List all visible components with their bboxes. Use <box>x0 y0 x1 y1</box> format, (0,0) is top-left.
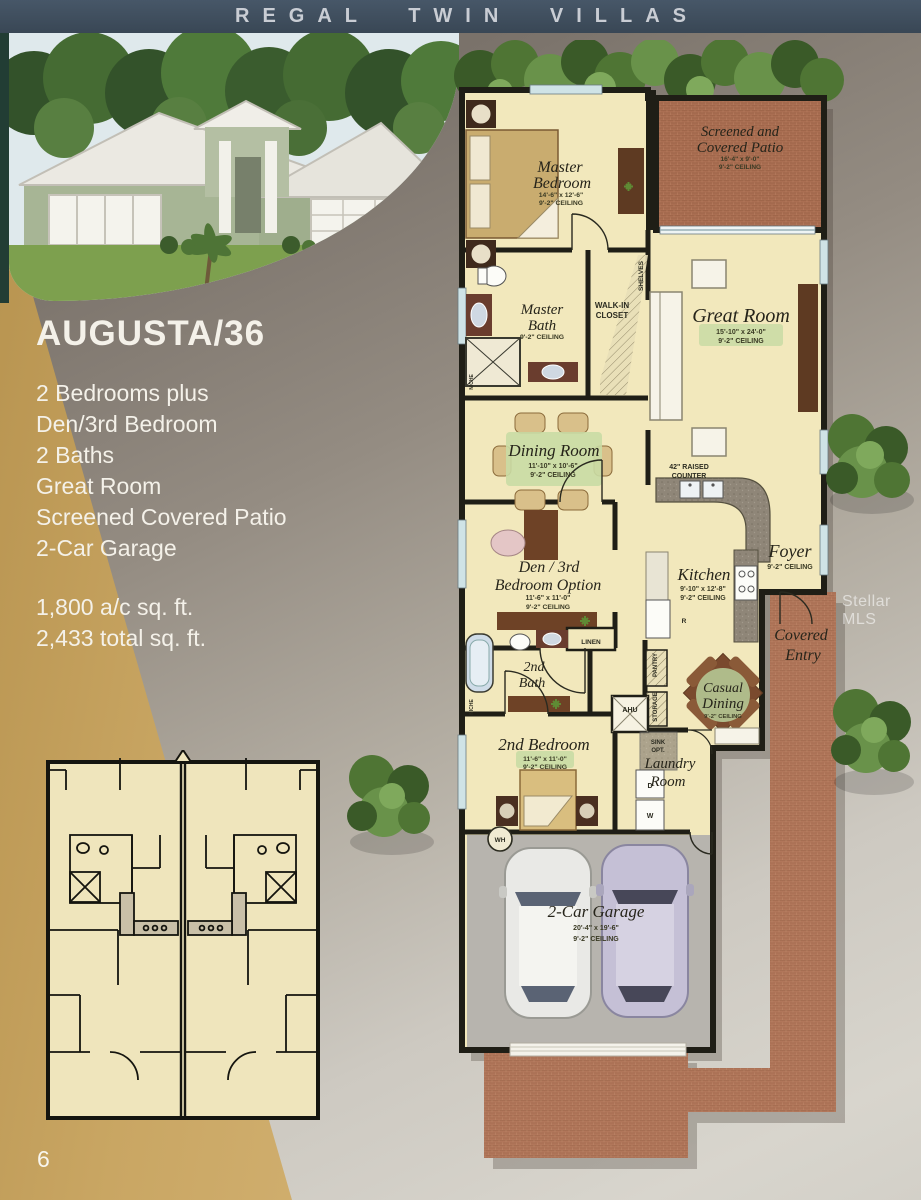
feature-item: 2 Bedrooms plus <box>36 378 287 409</box>
label-walkin-1: WALK-IN <box>595 301 629 310</box>
label-2nd-bath-2: Bath <box>519 676 545 691</box>
label-patio-ceiling: 9'-2" CEILING <box>719 164 761 171</box>
label-kitchen: Kitchen <box>677 565 731 584</box>
label-covered-entry-2: Entry <box>784 647 821 664</box>
feature-list: 2 Bedrooms plus Den/3rd Bedroom 2 Baths … <box>36 378 287 564</box>
label-foyer: Foyer <box>768 541 813 561</box>
label-2nd-bedroom: 2nd Bedroom <box>498 735 589 754</box>
label-linen: LINEN <box>581 639 601 646</box>
feature-item: Den/3rd Bedroom <box>36 409 287 440</box>
label-laundry-2: Room <box>650 774 686 790</box>
label-laundry-1: Laundry <box>644 756 696 772</box>
title-banner: REGAL TWIN VILLAS <box>0 0 921 33</box>
label-covered-entry-1: Covered <box>774 627 829 644</box>
watermark: Stellar MLS <box>842 593 921 629</box>
label-ahu: AHU <box>622 707 637 714</box>
label-den-ceiling: 9'-2" CEILING <box>526 604 570 611</box>
label-storage: STORAGE <box>653 692 659 722</box>
label-refrigerator: R <box>682 618 687 625</box>
tree-right-lower <box>831 689 914 795</box>
label-garage-ceiling: 9'-2" CEILING <box>573 936 619 943</box>
feature-item: 2-Car Garage <box>36 533 287 564</box>
floorplan: Master Bedroom 14'-6" x 12'-6" 9'-2" CEI… <box>335 40 921 1200</box>
ahu-closet <box>612 696 648 732</box>
label-2nd-bath-1: 2nd <box>524 660 546 675</box>
label-patio-dims: 16'-4" x 9'-0" <box>721 156 760 163</box>
label-foyer-ceiling: 9'-2" CEILING <box>767 564 813 571</box>
label-niche-2: NICHE <box>469 699 475 715</box>
model-info: AUGUSTA/36 2 Bedrooms plus Den/3rd Bedro… <box>36 314 287 654</box>
label-garage-dims: 20'-4" x 19'-6" <box>573 925 619 932</box>
label-sink-opt-2: OPT. <box>651 748 665 754</box>
label-den-2: Bedroom Option <box>495 577 602 594</box>
label-master-bedroom-ceiling: 9'-2" CEILING <box>539 200 583 207</box>
page-number: 6 <box>37 1146 50 1173</box>
label-kitchen-ceiling: 9'-2" CEILING <box>680 595 726 602</box>
label-garage: 2-Car Garage <box>548 902 645 921</box>
feature-item: 2 Baths <box>36 440 287 471</box>
banner-title: REGAL TWIN VILLAS <box>222 5 699 28</box>
bush-left <box>347 755 434 855</box>
label-den-dims: 11'-6" x 11'-0" <box>526 595 571 602</box>
label-master-bath-2: Bath <box>528 318 556 334</box>
garage-door <box>510 1043 686 1056</box>
car-1 <box>499 848 597 1018</box>
label-niche-1: NICHE <box>469 374 475 390</box>
label-pantry: PANTRY <box>653 653 659 677</box>
label-counter-2: COUNTER <box>672 473 707 480</box>
label-master-bath-ceiling: 9'-2" CEILING <box>520 334 564 341</box>
area-ac: 1,800 a/c sq. ft. <box>36 592 287 623</box>
floorplan-art: Master Bedroom 14'-6" x 12'-6" 9'-2" CEI… <box>335 40 921 1200</box>
label-casual-2: Dining <box>701 696 744 712</box>
label-patio-2: Covered Patio <box>697 140 784 156</box>
label-dryer: D <box>647 783 652 790</box>
label-2nd-bedroom-ceiling: 9'-2" CEILING <box>523 764 567 771</box>
label-great-room: Great Room <box>692 305 790 327</box>
feature-item: Screened Covered Patio <box>36 502 287 533</box>
label-great-room-dims: 15'-10" x 24'-0" <box>716 329 766 336</box>
label-master-bedroom-1: Master <box>536 159 583 176</box>
label-great-room-ceiling: 9'-2" CEILING <box>718 338 764 345</box>
label-counter-1: 42" RAISED <box>669 464 709 471</box>
label-kitchen-dims: 9'-10" x 12'-8" <box>680 586 726 593</box>
twin-plan-thumbnail <box>40 750 330 1130</box>
label-master-bath-1: Master <box>520 302 564 318</box>
label-2nd-bedroom-dims: 11'-6" x 11'-0" <box>523 756 567 763</box>
label-casual-1: Casual <box>703 681 743 696</box>
label-sink-opt-1: SINK <box>651 740 666 746</box>
label-master-bedroom-2: Bedroom <box>533 175 591 192</box>
brochure-page: REGAL TWIN VILLAS <box>0 0 921 1200</box>
label-dining-room: Dining Room <box>507 441 599 460</box>
feature-item: Great Room <box>36 471 287 502</box>
label-dining-dims: 11'-10" x 10'-6" <box>528 463 577 470</box>
label-patio-1: Screened and <box>701 124 780 140</box>
label-dining-ceiling: 9'-2" CEILING <box>530 472 576 479</box>
label-casual-ceiling: 9'-2" CEILING <box>704 714 742 720</box>
area-list: 1,800 a/c sq. ft. 2,433 total sq. ft. <box>36 592 287 654</box>
label-washer: W <box>647 813 654 820</box>
label-den-1: Den / 3rd <box>518 559 581 576</box>
label-master-bedroom-dims: 14'-6" x 12'-6" <box>539 192 583 199</box>
tree-right-upper <box>826 414 914 514</box>
label-walkin-2: CLOSET <box>596 311 629 320</box>
left-accent-strip <box>0 33 9 303</box>
label-shelves: SHELVES <box>638 260 645 291</box>
area-total: 2,433 total sq. ft. <box>36 623 287 654</box>
label-wh: WH <box>495 837 506 844</box>
model-name: AUGUSTA/36 <box>36 314 287 354</box>
